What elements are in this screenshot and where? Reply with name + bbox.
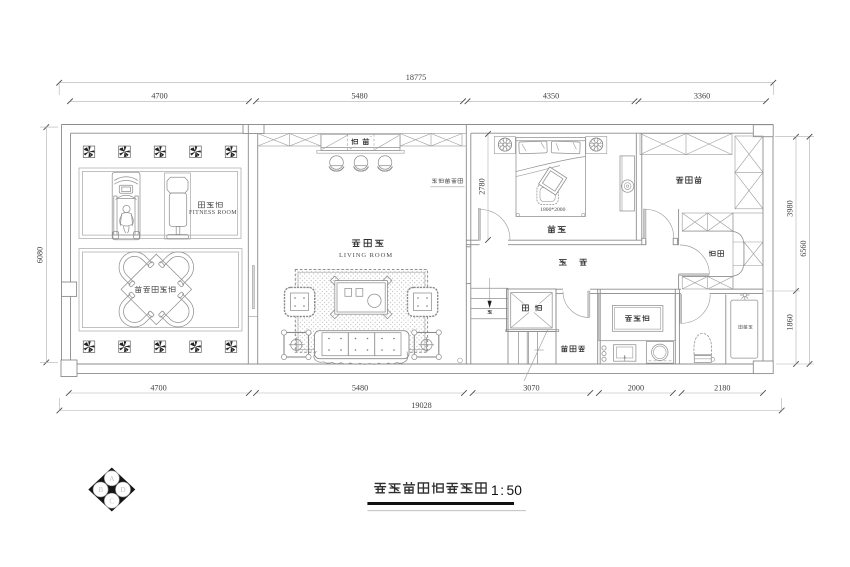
svg-text:4350: 4350 [543,91,559,100]
svg-text:LIVING ROOM: LIVING ROOM [339,252,393,259]
svg-text:3070: 3070 [523,383,539,392]
svg-text:A: A [109,474,115,483]
svg-text:C: C [109,496,114,505]
svg-text:D: D [120,485,126,494]
svg-text:B: B [98,485,103,494]
svg-text:4700: 4700 [150,383,166,392]
svg-text:1800*2000: 1800*2000 [540,207,565,213]
svg-text:18775: 18775 [406,73,426,82]
svg-text:2000: 2000 [628,383,644,392]
svg-text:4700: 4700 [151,91,167,100]
svg-text:3360: 3360 [694,91,710,100]
svg-text:1:50: 1:50 [491,483,522,498]
svg-text:6080: 6080 [36,247,45,263]
svg-text:2780: 2780 [478,178,487,194]
svg-text:5480: 5480 [352,383,368,392]
svg-text:19028: 19028 [411,401,431,410]
svg-text:3980: 3980 [785,200,794,216]
svg-text:6560: 6560 [799,240,808,256]
svg-text:2180: 2180 [714,383,730,392]
svg-text:1860: 1860 [785,314,794,330]
svg-text:FITNESS ROOM: FITNESS ROOM [189,210,237,216]
svg-text:5480: 5480 [351,91,367,100]
